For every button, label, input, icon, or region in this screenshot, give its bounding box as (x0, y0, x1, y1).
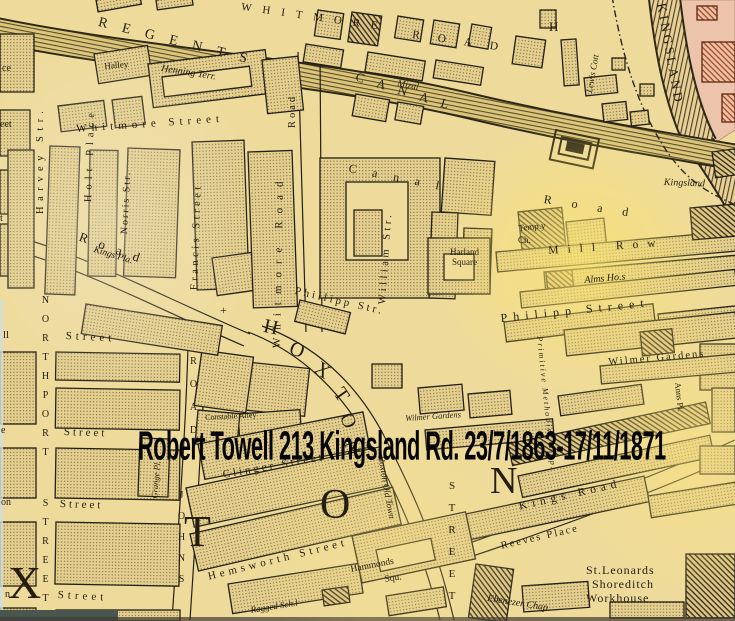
map-label: Ragged Sch.l (250, 599, 298, 615)
map-canvas: REGENTSWHITMOREROADCANALKINGSLANDHMizalL… (0, 0, 735, 621)
label-reeves-place: Reeves Place (500, 524, 580, 552)
map-label: Anns Pl. (674, 382, 686, 412)
map-label: Road (288, 94, 299, 128)
label-holt-place: Holt Place (84, 108, 98, 202)
label-william-street: William Str. (378, 211, 395, 304)
label-whitmore-road: ROAD (411, 30, 516, 56)
map-label: Hammonds (350, 558, 395, 576)
label-norris-street: Norris Str. (120, 170, 133, 234)
map-label: Halley (104, 60, 129, 71)
map-label: Square (452, 258, 477, 267)
label-workhouse: Shoreditch (592, 578, 654, 590)
map-label: Henning Terr. (160, 64, 216, 83)
map-label: on (1, 498, 11, 508)
map-label: Street (60, 499, 104, 512)
map-label: T (330, 384, 353, 405)
label-harvey-street: Harvey Str. (36, 106, 47, 214)
map-label: H (549, 20, 558, 33)
label-mill-row: Mill Row (548, 238, 665, 258)
map-label: eet (0, 120, 12, 130)
label-hemsworth-street: Hemsworth Street (207, 537, 349, 582)
label-philipp-street: Philipp Street (500, 296, 650, 324)
label-hoxton-street: STREET (446, 480, 457, 612)
label-canal-road: Canal (348, 162, 456, 194)
map-label: + (220, 304, 227, 316)
district-letter: X (8, 560, 41, 606)
district-letter: T (184, 510, 211, 554)
map-label: Street (57, 590, 107, 604)
label-phillipp-street: Phillipp Str. (294, 286, 386, 317)
map-label: X (311, 358, 334, 383)
map-label: t (0, 214, 3, 224)
map-label: Wilmer Gardens (405, 410, 461, 422)
label-workhouse: Workhouse (586, 592, 649, 604)
label-whitmore-street: Whitmore Street (76, 114, 224, 135)
map-labels-layer: REGENTSWHITMOREROADCANALKINGSLANDHMizalL… (0, 0, 735, 621)
label-workhouse: St.Leonards (586, 564, 655, 576)
label-alms-houses: Alms Ho.s (584, 272, 626, 286)
map-label: ll (3, 330, 9, 341)
label-kings-road: Kings Road (518, 478, 623, 513)
map-label: Street (64, 427, 108, 440)
label-whitmore-road: WHITMORE (240, 2, 389, 34)
label-northport-street: NORTHPORT (40, 295, 50, 466)
map-label: Squ. (384, 573, 402, 585)
map-label: ce (2, 64, 11, 74)
overlay-caption: Robert Towell 213 Kingsland Rd. 23/7/186… (138, 424, 666, 470)
map-label: e (1, 426, 5, 436)
map-label: Ch. (518, 236, 531, 245)
label-lewis-cott: Lewis Cott (585, 54, 601, 94)
label-kingsland-road: KINGSLAND (655, 2, 686, 106)
label-northport-street: STREET (40, 498, 50, 612)
map-label: Constable Alley (205, 411, 257, 422)
district-letter: O (320, 484, 350, 526)
map-label: Street (65, 331, 115, 345)
map-label: Kingsland (664, 178, 705, 189)
label-wilmer-gardens: Wilmer Gardens (608, 350, 706, 369)
label-canal-road: Road (543, 193, 649, 221)
label-ebenezer-chapel: Ebenezer Chap. (486, 594, 551, 614)
map-label: Harland (450, 248, 479, 257)
label-canal: CANAL (354, 70, 463, 115)
label-francis-street: Francis Street (190, 183, 204, 290)
map-label: O (287, 338, 308, 362)
map-label: Temp.y (518, 221, 546, 233)
